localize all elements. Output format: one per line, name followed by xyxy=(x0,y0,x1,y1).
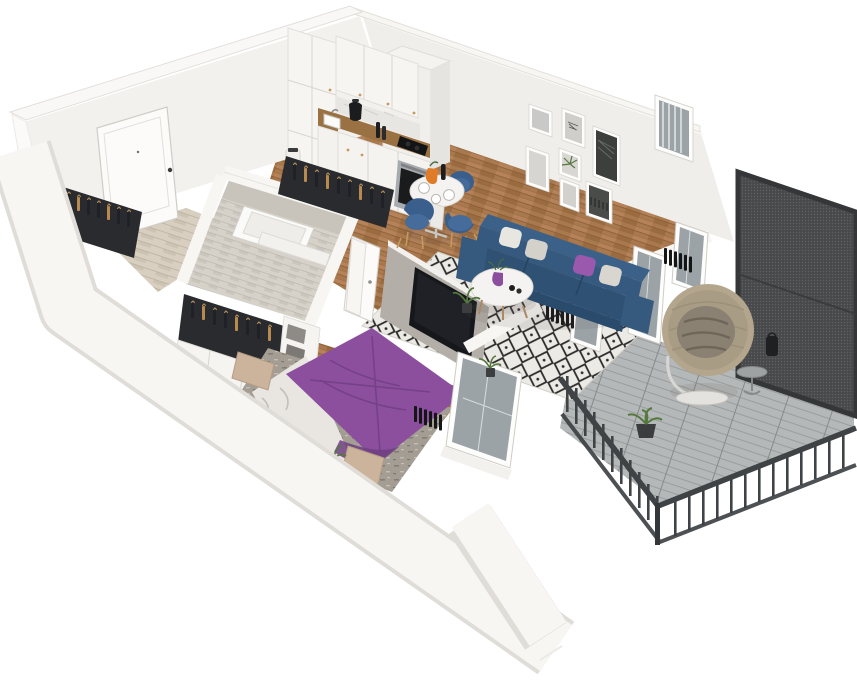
floorplan-svg xyxy=(0,0,857,700)
door-handle xyxy=(168,168,172,172)
art-botanical xyxy=(529,150,546,188)
floorplan-render xyxy=(0,0,857,700)
table-bottle xyxy=(441,164,446,180)
balcony-lantern xyxy=(766,333,778,356)
privacy-mesh-screen xyxy=(738,172,856,416)
bottle xyxy=(376,122,380,138)
art-palm xyxy=(596,130,617,182)
bottle xyxy=(382,126,386,140)
door-peephole xyxy=(137,151,139,153)
